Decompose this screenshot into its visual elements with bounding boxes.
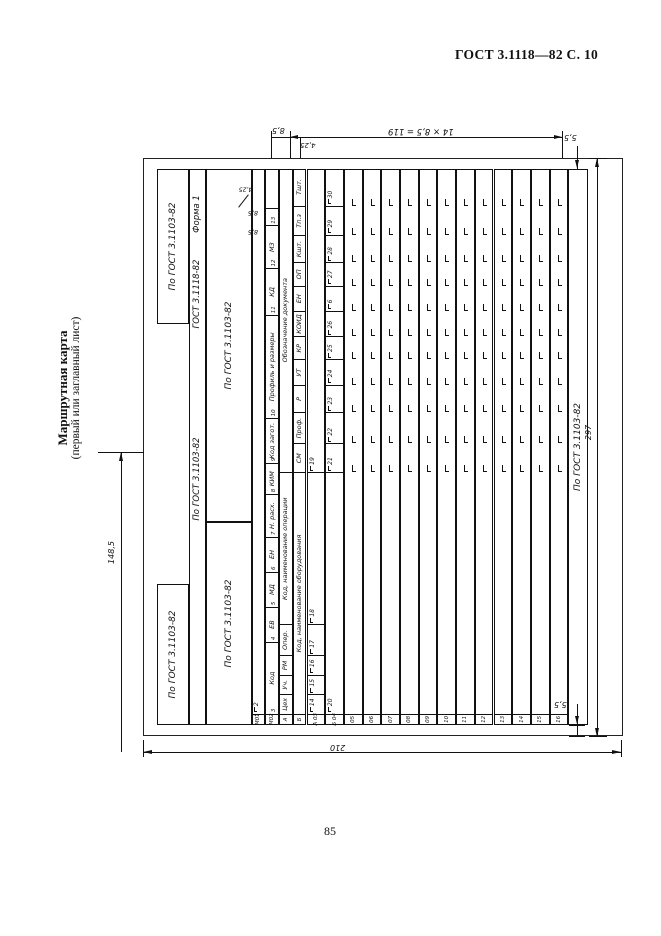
column-tick	[483, 405, 487, 412]
column-tick	[427, 405, 431, 412]
column-tick	[445, 199, 449, 206]
column-tick	[352, 228, 356, 235]
dim-arrow-148	[119, 452, 123, 461]
empty-row-label: 12	[476, 714, 493, 724]
empty-row-cell	[438, 170, 455, 714]
empty-row-cell	[551, 170, 568, 714]
empty-row-label: 11	[457, 714, 474, 724]
column-tick	[464, 255, 468, 262]
dim-line-210	[143, 752, 621, 753]
column-tick	[427, 279, 431, 286]
column-tick	[464, 436, 468, 443]
column-tick	[539, 465, 543, 472]
dim-cell13-b: 8,5	[241, 209, 265, 217]
column-tick	[502, 255, 506, 262]
column-tick	[502, 199, 506, 206]
header-box-right: По ГОСТ 3.1103-82	[206, 169, 252, 522]
cell-sm: СМ	[294, 443, 306, 472]
row-b: Б Код, наименование оборудования СМ Проф…	[293, 169, 307, 725]
cell-r: Р	[294, 385, 306, 412]
dim-ext-85-a	[271, 131, 272, 158]
empty-row-14: 14	[512, 169, 531, 725]
column-tick	[539, 329, 543, 336]
column-tick	[408, 255, 412, 262]
column-tick	[408, 279, 412, 286]
cell-g18: 18	[308, 472, 325, 624]
cell-ut: УТ	[294, 359, 306, 384]
cell-op: ОП	[294, 262, 306, 285]
dim-label-119: 14 × 8,5 = 119	[388, 126, 454, 136]
column-tick	[371, 255, 375, 262]
empty-row-cell	[420, 170, 437, 714]
cell-mz: МЗ12	[266, 225, 278, 268]
page-header: ГОСТ 3.1118—82 С. 10	[455, 47, 598, 63]
column-tick	[558, 378, 562, 385]
column-tick	[539, 436, 543, 443]
column-tick	[445, 228, 449, 235]
column-tick	[520, 279, 524, 286]
row-a-label: А	[280, 714, 292, 724]
column-tick	[352, 436, 356, 443]
column-tick	[408, 199, 412, 206]
cell-g28: 28	[326, 235, 343, 262]
column-tick	[371, 465, 375, 472]
header-box-top-left: По ГОСТ 3.1103-82	[157, 584, 189, 725]
document-page: { "page": { "header": "ГОСТ 3.1118—82 С.…	[0, 0, 661, 936]
row-a: А Цех Уч. РМ Опер. Код, наименование опе…	[279, 169, 293, 725]
column-tick	[427, 228, 431, 235]
column-tick	[352, 304, 356, 311]
column-tick	[502, 228, 506, 235]
column-tick	[483, 304, 487, 311]
column-tick	[445, 255, 449, 262]
column-tick	[502, 304, 506, 311]
column-tick	[427, 378, 431, 385]
column-tick	[558, 352, 562, 359]
dim-arrow-119-r	[554, 135, 562, 139]
column-tick	[558, 279, 562, 286]
column-tick	[464, 329, 468, 336]
column-tick	[483, 255, 487, 262]
cell-m02-blank	[266, 170, 278, 208]
cell-g24: 24	[326, 359, 343, 384]
column-tick	[445, 465, 449, 472]
row-a03: А 03 14 15 16 17 18 19	[307, 169, 326, 725]
column-tick	[539, 352, 543, 359]
column-tick	[558, 465, 562, 472]
empty-row-cell	[401, 170, 418, 714]
empty-row-label: 13	[495, 714, 512, 724]
column-tick	[352, 199, 356, 206]
column-tick	[371, 304, 375, 311]
cell-kod: Код3	[266, 642, 278, 714]
dim-label-148: 148,5	[107, 541, 116, 564]
column-tick	[520, 228, 524, 235]
column-tick	[539, 378, 543, 385]
graph-num-2: 2	[254, 702, 260, 712]
column-tick	[539, 304, 543, 311]
empty-row-11: 11	[456, 169, 475, 725]
column-tick	[445, 329, 449, 336]
dim-arrow-55-bot	[575, 716, 579, 724]
cell-en-b: ЕН	[294, 286, 306, 311]
row-b04-label: Б 04	[326, 714, 343, 724]
column-tick	[352, 378, 356, 385]
dim-ext-55-bot-1	[569, 725, 585, 726]
column-tick	[483, 436, 487, 443]
dim-ext-119	[562, 131, 563, 158]
column-tick	[352, 329, 356, 336]
column-tick	[502, 405, 506, 412]
empty-row-label: 16	[551, 714, 568, 724]
dim-arrow-210-r	[612, 750, 621, 754]
column-tick	[464, 352, 468, 359]
cell-koid: КОИД	[294, 311, 306, 336]
dim-arrow-55-top	[575, 160, 579, 168]
column-tick	[483, 228, 487, 235]
column-tick	[427, 304, 431, 311]
cell-prof: Проф.	[294, 412, 306, 443]
dim-ext-297-t	[589, 158, 607, 159]
dim-ext-210-r	[621, 740, 622, 757]
cell-kod-zagot: Код загот.9	[266, 418, 278, 463]
row-m01-cell: 2	[253, 170, 265, 714]
column-tick	[371, 405, 375, 412]
column-tick	[502, 378, 506, 385]
cell-kr: КР	[294, 336, 306, 359]
cell-tpz: Тп.з	[294, 206, 306, 235]
column-tick	[408, 405, 412, 412]
dim-label-210: 210	[330, 743, 345, 752]
row-m02-label: М02	[266, 714, 278, 724]
column-tick	[502, 329, 506, 336]
cell-rm: РМ	[280, 655, 292, 674]
column-tick	[352, 279, 356, 286]
cell-g30: 30	[326, 168, 343, 206]
dim-label-85: 8,5	[272, 126, 285, 135]
column-tick	[408, 329, 412, 336]
column-tick	[389, 352, 393, 359]
column-tick	[371, 436, 375, 443]
column-tick	[502, 352, 506, 359]
column-tick	[389, 405, 393, 412]
dim-ext-210-l	[143, 740, 144, 757]
column-tick	[445, 304, 449, 311]
column-tick	[389, 279, 393, 286]
empty-row-cell	[345, 170, 362, 714]
column-tick	[408, 352, 412, 359]
column-tick	[408, 465, 412, 472]
empty-row-cell	[476, 170, 493, 714]
column-tick	[408, 436, 412, 443]
cell-ksht: Кшт.	[294, 235, 306, 262]
empty-row-05: 05	[344, 169, 363, 725]
column-tick	[408, 304, 412, 311]
column-tick	[464, 304, 468, 311]
column-tick	[483, 352, 487, 359]
cell-tsht: Тшт.	[294, 168, 306, 206]
column-tick	[427, 352, 431, 359]
dim-ext-55-top	[569, 169, 585, 170]
empty-row-label: 10	[438, 714, 455, 724]
column-tick	[445, 352, 449, 359]
column-tick	[389, 465, 393, 472]
route-card-form-drawing: По ГОСТ 3.1103-82 По ГОСТ 3.1103-82 По Г…	[143, 158, 623, 736]
column-tick	[445, 436, 449, 443]
column-tick	[464, 199, 468, 206]
column-tick	[520, 255, 524, 262]
column-tick	[408, 228, 412, 235]
dim-line-85	[271, 137, 290, 138]
empty-row-08: 08	[400, 169, 419, 725]
column-tick	[464, 228, 468, 235]
cell-equipment: Код, наименование оборудования	[294, 472, 306, 713]
column-tick	[445, 378, 449, 385]
cell-g16: 16	[308, 655, 325, 674]
column-tick	[352, 405, 356, 412]
header-box-left: По ГОСТ 3.1103-82	[206, 522, 252, 725]
column-tick	[520, 436, 524, 443]
cell-g23: 23	[326, 385, 343, 412]
row-m02: М02 Код3 ЕВ4 МД5 ЕН6 Н. расх.7 КИМ8 Код …	[265, 169, 279, 725]
dim-label-297: 297	[584, 425, 593, 440]
dim-arrow-297-u	[595, 158, 599, 167]
empty-row-label: 06	[364, 714, 381, 724]
dim-cell13-a: 8,5	[241, 228, 265, 236]
column-tick	[520, 329, 524, 336]
cell-kim: КИМ8	[266, 463, 278, 494]
column-tick	[539, 279, 543, 286]
row-m01: М011 2	[252, 169, 266, 725]
cell-ceh: Цех	[280, 694, 292, 714]
column-tick	[427, 465, 431, 472]
column-tick	[483, 329, 487, 336]
column-tick	[520, 199, 524, 206]
dim-label-55-bot: 5,5	[554, 700, 567, 709]
column-tick	[464, 378, 468, 385]
empty-row-cell	[457, 170, 474, 714]
column-tick	[371, 352, 375, 359]
row-a03-label: А 03	[308, 714, 325, 724]
column-tick	[558, 436, 562, 443]
empty-row-label: 08	[401, 714, 418, 724]
column-tick	[464, 465, 468, 472]
column-tick	[371, 279, 375, 286]
column-tick	[464, 279, 468, 286]
column-tick	[539, 199, 543, 206]
column-tick	[427, 329, 431, 336]
cell-g22: 22	[326, 412, 343, 443]
cell-nrash: Н. расх.7	[266, 494, 278, 537]
column-tick	[539, 405, 543, 412]
column-tick	[408, 378, 412, 385]
column-tick	[389, 436, 393, 443]
column-tick	[352, 352, 356, 359]
column-tick	[483, 465, 487, 472]
empty-row-07: 07	[381, 169, 400, 725]
cell-g19: 19	[308, 168, 325, 472]
column-tick	[520, 465, 524, 472]
empty-row-cell	[532, 170, 549, 714]
dim-arrow-210-l	[143, 750, 152, 754]
empty-row-15: 15	[531, 169, 550, 725]
column-tick	[539, 228, 543, 235]
cell-g17: 17	[308, 624, 325, 655]
empty-row-cell	[364, 170, 381, 714]
cell-operation-name: Код, наименование операции	[280, 472, 292, 624]
column-tick	[558, 228, 562, 235]
column-tick	[389, 329, 393, 336]
cell-g14: 14	[308, 694, 325, 714]
empty-row-16: 16	[550, 169, 569, 725]
empty-row-label: 15	[532, 714, 549, 724]
column-tick	[483, 378, 487, 385]
cell-g27: 27	[326, 262, 343, 285]
column-tick	[389, 228, 393, 235]
header-box-top-right: По ГОСТ 3.1103-82	[157, 169, 189, 324]
cell-g25: 25	[326, 336, 343, 359]
empty-row-label: 14	[513, 714, 530, 724]
cell-ev: ЕВ4	[266, 607, 278, 642]
dim-arrow-119-l	[290, 135, 298, 139]
empty-row-cell	[513, 170, 530, 714]
column-tick	[558, 405, 562, 412]
row-b-label: Б	[294, 714, 306, 724]
cell-oper: Опер.	[280, 624, 292, 655]
page-number: 85	[324, 824, 336, 839]
column-tick	[371, 199, 375, 206]
dim-ext-297-b	[589, 736, 607, 737]
cell-g21: 21	[326, 443, 343, 472]
column-tick	[445, 405, 449, 412]
side-caption-title: Маршрутная карта	[55, 268, 70, 508]
cell-uch: Уч.	[280, 675, 292, 694]
column-tick	[502, 436, 506, 443]
side-caption-subtitle: (первый или заглавный лист)	[70, 268, 83, 508]
graph-num-1: 1	[253, 714, 258, 717]
column-tick	[464, 405, 468, 412]
side-caption: Маршрутная карта (первый или заглавный л…	[55, 268, 101, 508]
column-tick	[389, 255, 393, 262]
empty-row-label: 07	[382, 714, 399, 724]
column-tick	[539, 255, 543, 262]
empty-row-10: 10	[437, 169, 456, 725]
column-tick	[371, 329, 375, 336]
column-tick	[427, 199, 431, 206]
empty-row-label: 09	[420, 714, 437, 724]
column-tick	[389, 378, 393, 385]
cell-g26: 26	[326, 311, 343, 336]
column-tick	[427, 255, 431, 262]
column-tick	[371, 228, 375, 235]
column-tick	[427, 436, 431, 443]
column-tick	[445, 279, 449, 286]
column-tick	[520, 405, 524, 412]
empty-row-09: 09	[419, 169, 438, 725]
column-tick	[502, 279, 506, 286]
empty-row-cell	[495, 170, 512, 714]
cell-en: ЕН6	[266, 537, 278, 572]
empty-row-cell	[382, 170, 399, 714]
column-tick	[558, 255, 562, 262]
header-strip: По ГОСТ 3.1103-82 ГОСТ 3.1118-82 Форма 1	[189, 169, 206, 725]
column-tick	[558, 329, 562, 336]
dim-cell13-c: 4,25	[233, 186, 259, 193]
cell-profil: Профиль и размеры10	[266, 315, 278, 418]
dim-label-425: 4,25	[300, 141, 316, 149]
empty-row-13: 13	[494, 169, 513, 725]
form-caption-forma: Форма 1	[190, 174, 205, 254]
row-b04: Б 04 20 21 22 23 24 25 26 6 27 28 29 30	[325, 169, 344, 725]
column-tick	[558, 304, 562, 311]
dim-ext-55-bot-2	[569, 736, 585, 737]
column-tick	[520, 352, 524, 359]
column-tick	[371, 378, 375, 385]
cell-g20: 20	[326, 472, 343, 713]
column-tick	[502, 465, 506, 472]
header-strip-gost-ref: По ГОСТ 3.1103-82	[190, 384, 205, 574]
column-tick	[352, 465, 356, 472]
cell-g6: 6	[326, 286, 343, 311]
footer-box: По ГОСТ 3.1103-82	[568, 169, 588, 725]
column-tick	[558, 199, 562, 206]
cell-13: 13	[266, 208, 278, 226]
row-m01-label: М011	[253, 714, 265, 724]
dim-label-55-top: 5,5	[564, 133, 577, 142]
dim-line-297	[597, 158, 598, 737]
column-tick	[483, 199, 487, 206]
column-tick	[520, 378, 524, 385]
column-tick	[389, 304, 393, 311]
cell-g29: 29	[326, 206, 343, 235]
dim-ext-148	[98, 452, 144, 453]
empty-row-12: 12	[475, 169, 494, 725]
cell-g15: 15	[308, 675, 325, 694]
column-tick	[352, 255, 356, 262]
empty-row-label: 05	[345, 714, 362, 724]
column-tick	[483, 279, 487, 286]
cell-md: МД5	[266, 572, 278, 607]
dim-line-148	[121, 452, 122, 752]
cell-kd: КД11	[266, 268, 278, 315]
empty-row-06: 06	[363, 169, 382, 725]
dim-line-119	[290, 137, 562, 138]
column-tick	[389, 199, 393, 206]
cell-doc-designation: Обозначение документа	[280, 168, 292, 472]
column-tick	[520, 304, 524, 311]
